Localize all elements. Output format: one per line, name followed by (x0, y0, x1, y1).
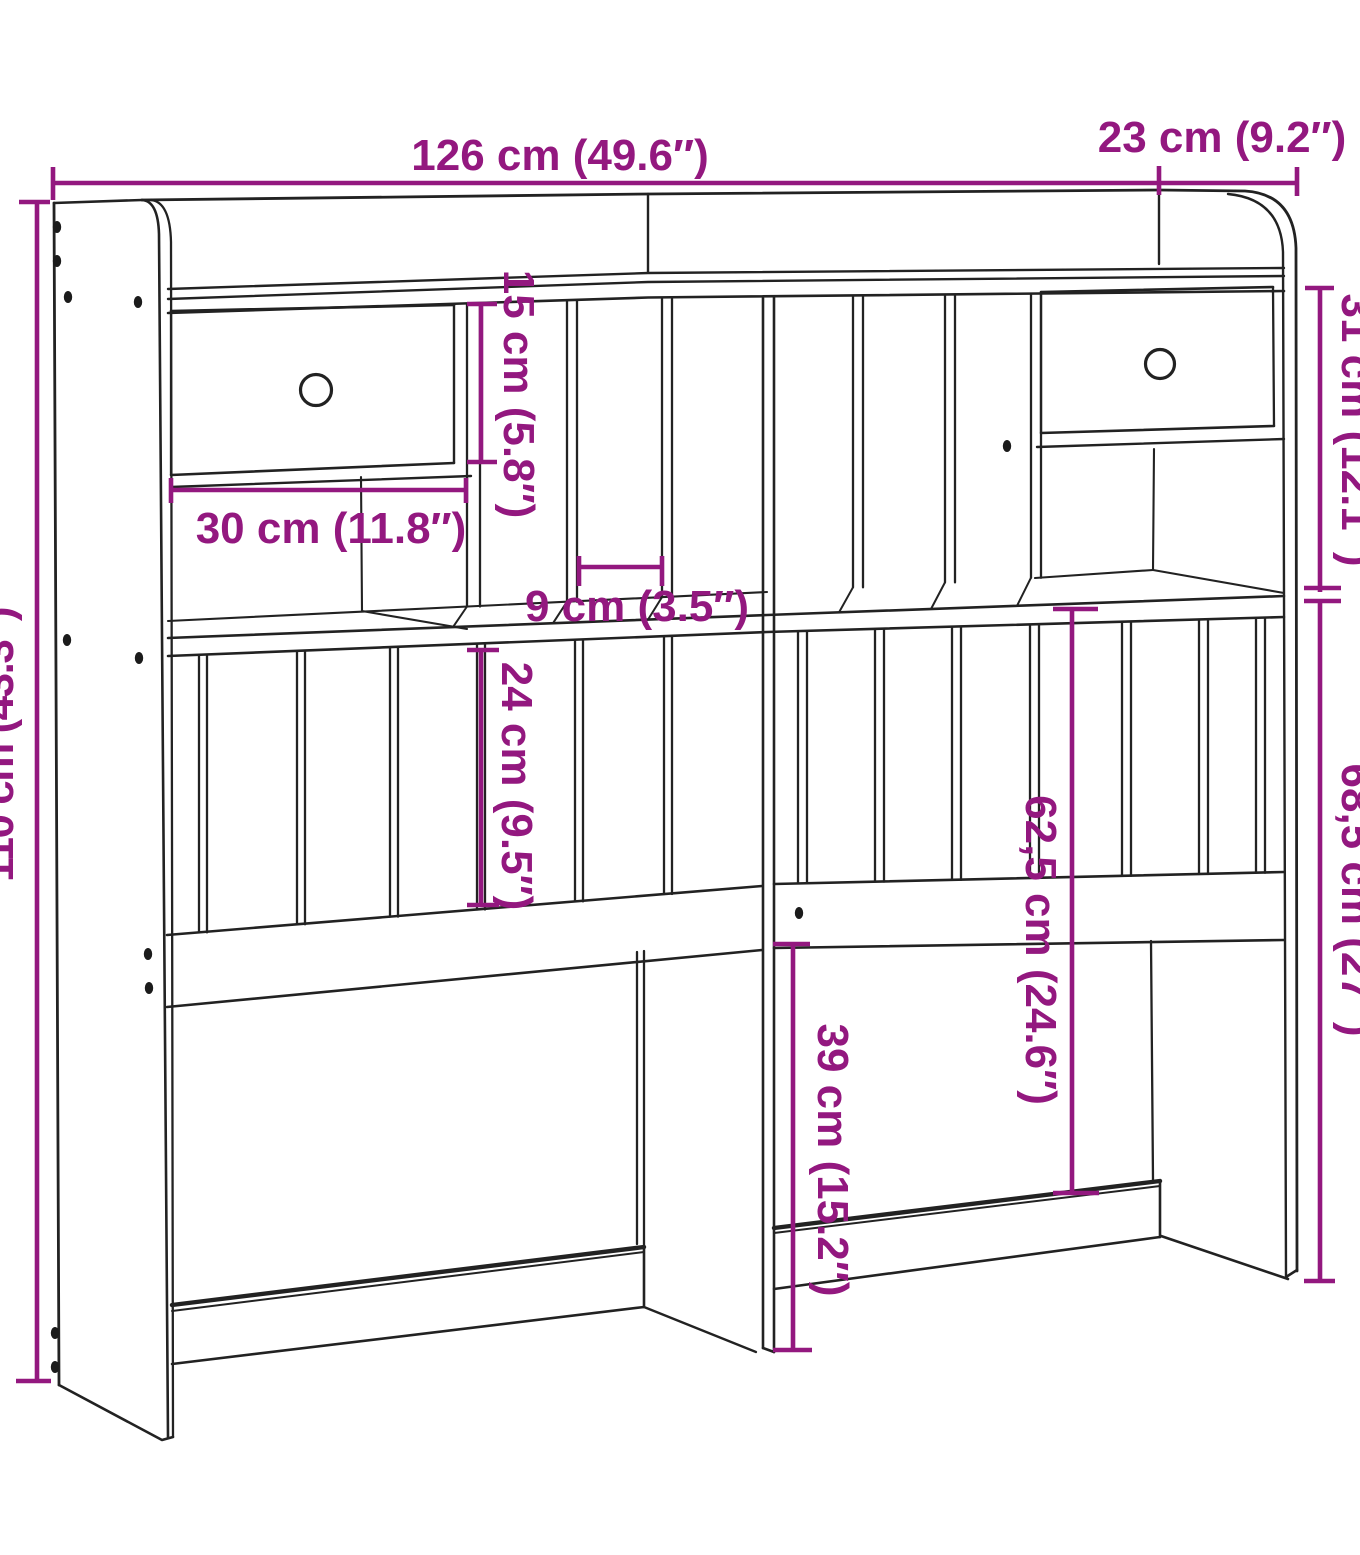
svg-text:15 cm (5.8″): 15 cm (5.8″) (494, 270, 543, 519)
svg-text:110 cm (43.3″): 110 cm (43.3″) (0, 608, 23, 882)
svg-text:31 cm (12.1″): 31 cm (12.1″) (1332, 293, 1360, 566)
svg-text:126 cm (49.6″): 126 cm (49.6″) (411, 131, 708, 180)
svg-text:39 cm (15.2″): 39 cm (15.2″) (808, 1023, 857, 1296)
svg-text:9 cm (3.5″): 9 cm (3.5″) (525, 582, 749, 631)
svg-text:68,5 cm (27″): 68,5 cm (27″) (1332, 763, 1360, 1036)
svg-text:24 cm (9.5″): 24 cm (9.5″) (492, 662, 541, 911)
svg-text:30 cm (11.8″): 30 cm (11.8″) (196, 504, 467, 553)
svg-text:62,5 cm (24.6″): 62,5 cm (24.6″) (1016, 795, 1065, 1105)
svg-text:23 cm (9.2″): 23 cm (9.2″) (1098, 113, 1347, 162)
